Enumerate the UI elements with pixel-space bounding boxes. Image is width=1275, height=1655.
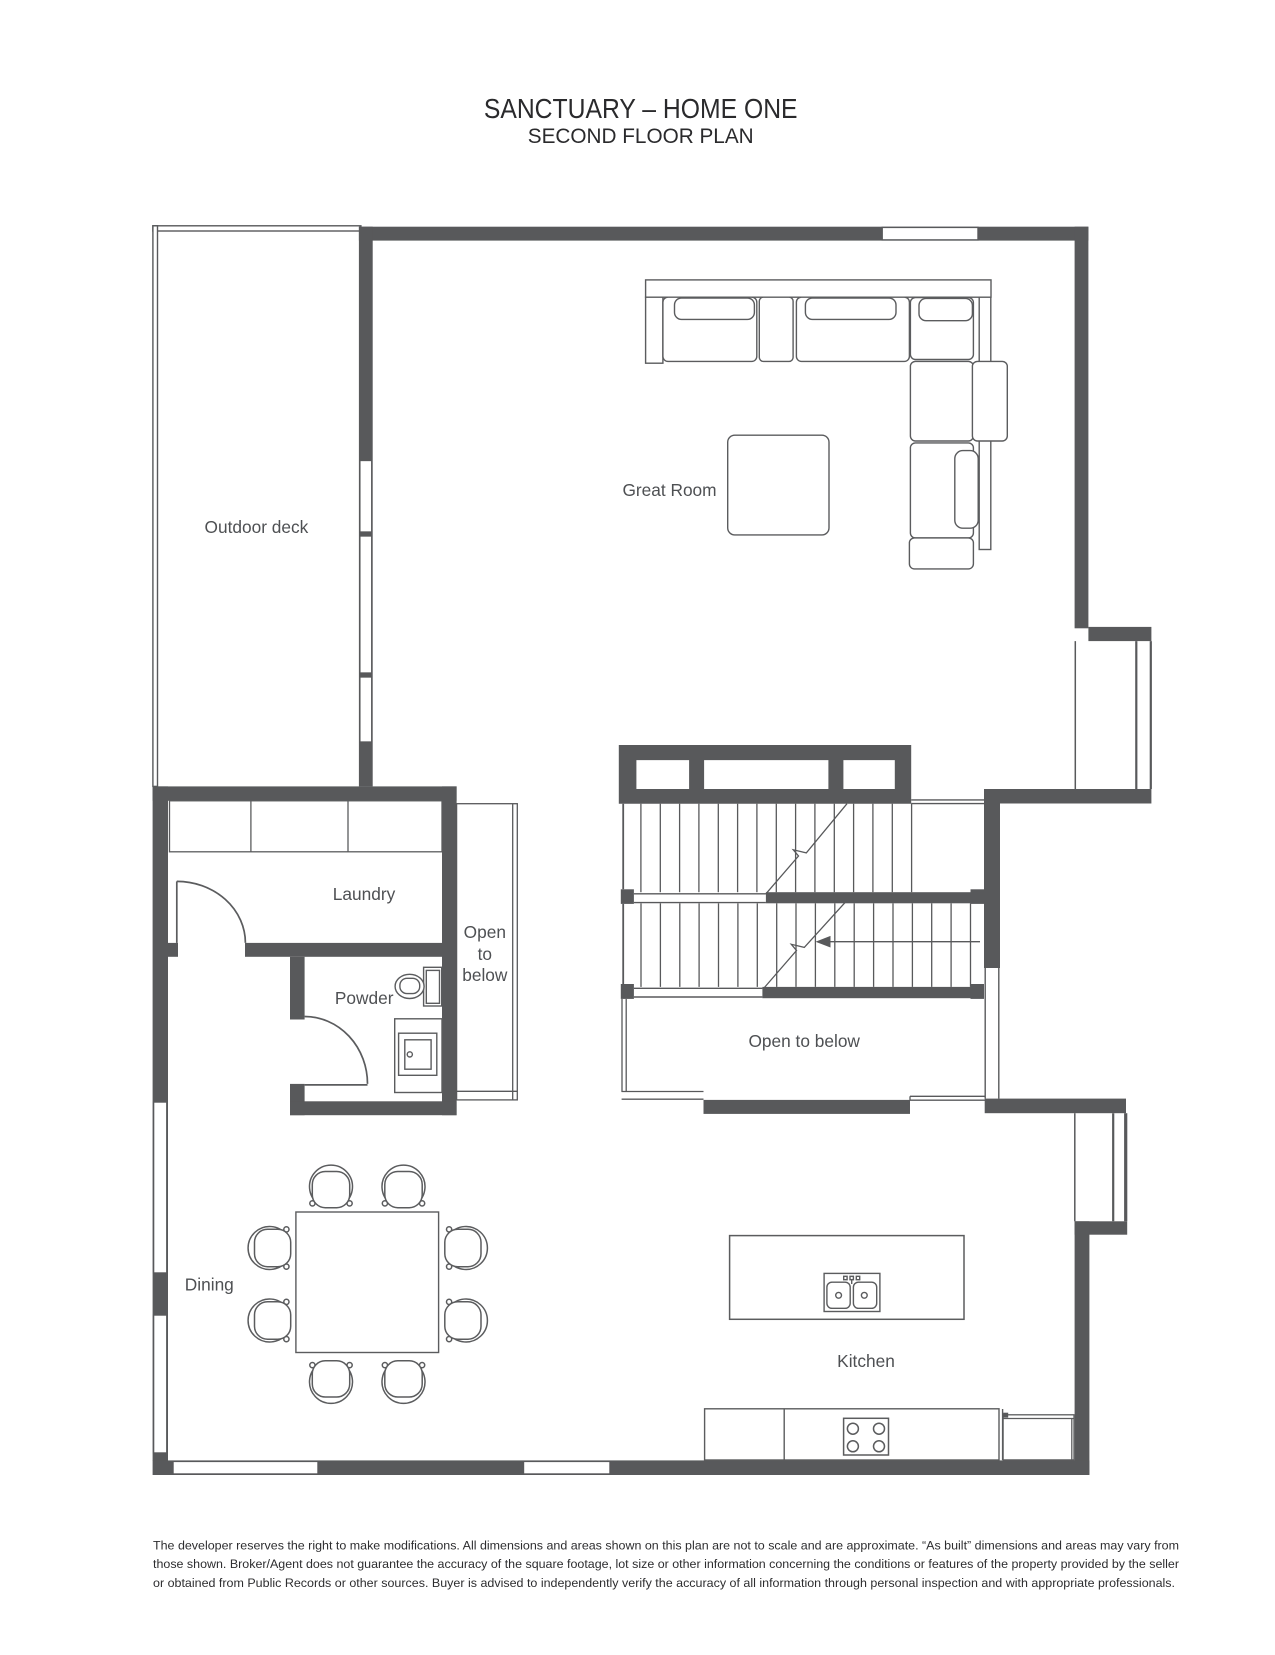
svg-text:Outdoor deck: Outdoor deck bbox=[205, 517, 309, 537]
svg-text:Powder: Powder bbox=[335, 988, 394, 1008]
svg-text:to: to bbox=[478, 944, 492, 964]
svg-text:Kitchen: Kitchen bbox=[837, 1351, 895, 1371]
svg-text:or obtained from Public Record: or obtained from Public Records or other… bbox=[153, 1576, 1175, 1590]
svg-text:The developer reserves the rig: The developer reserves the right to make… bbox=[153, 1539, 1179, 1553]
svg-text:SANCTUARY – HOME ONE: SANCTUARY – HOME ONE bbox=[484, 93, 798, 124]
svg-text:Dining: Dining bbox=[185, 1275, 234, 1295]
svg-text:those shown. Broker/Agent does: those shown. Broker/Agent does not guara… bbox=[153, 1557, 1179, 1571]
svg-text:Laundry: Laundry bbox=[333, 884, 396, 904]
svg-text:SECOND FLOOR PLAN: SECOND FLOOR PLAN bbox=[528, 124, 754, 148]
svg-text:Open: Open bbox=[464, 922, 506, 942]
svg-text:Great Room: Great Room bbox=[622, 480, 716, 500]
svg-text:below: below bbox=[462, 965, 508, 985]
svg-text:Open to below: Open to below bbox=[748, 1031, 860, 1051]
